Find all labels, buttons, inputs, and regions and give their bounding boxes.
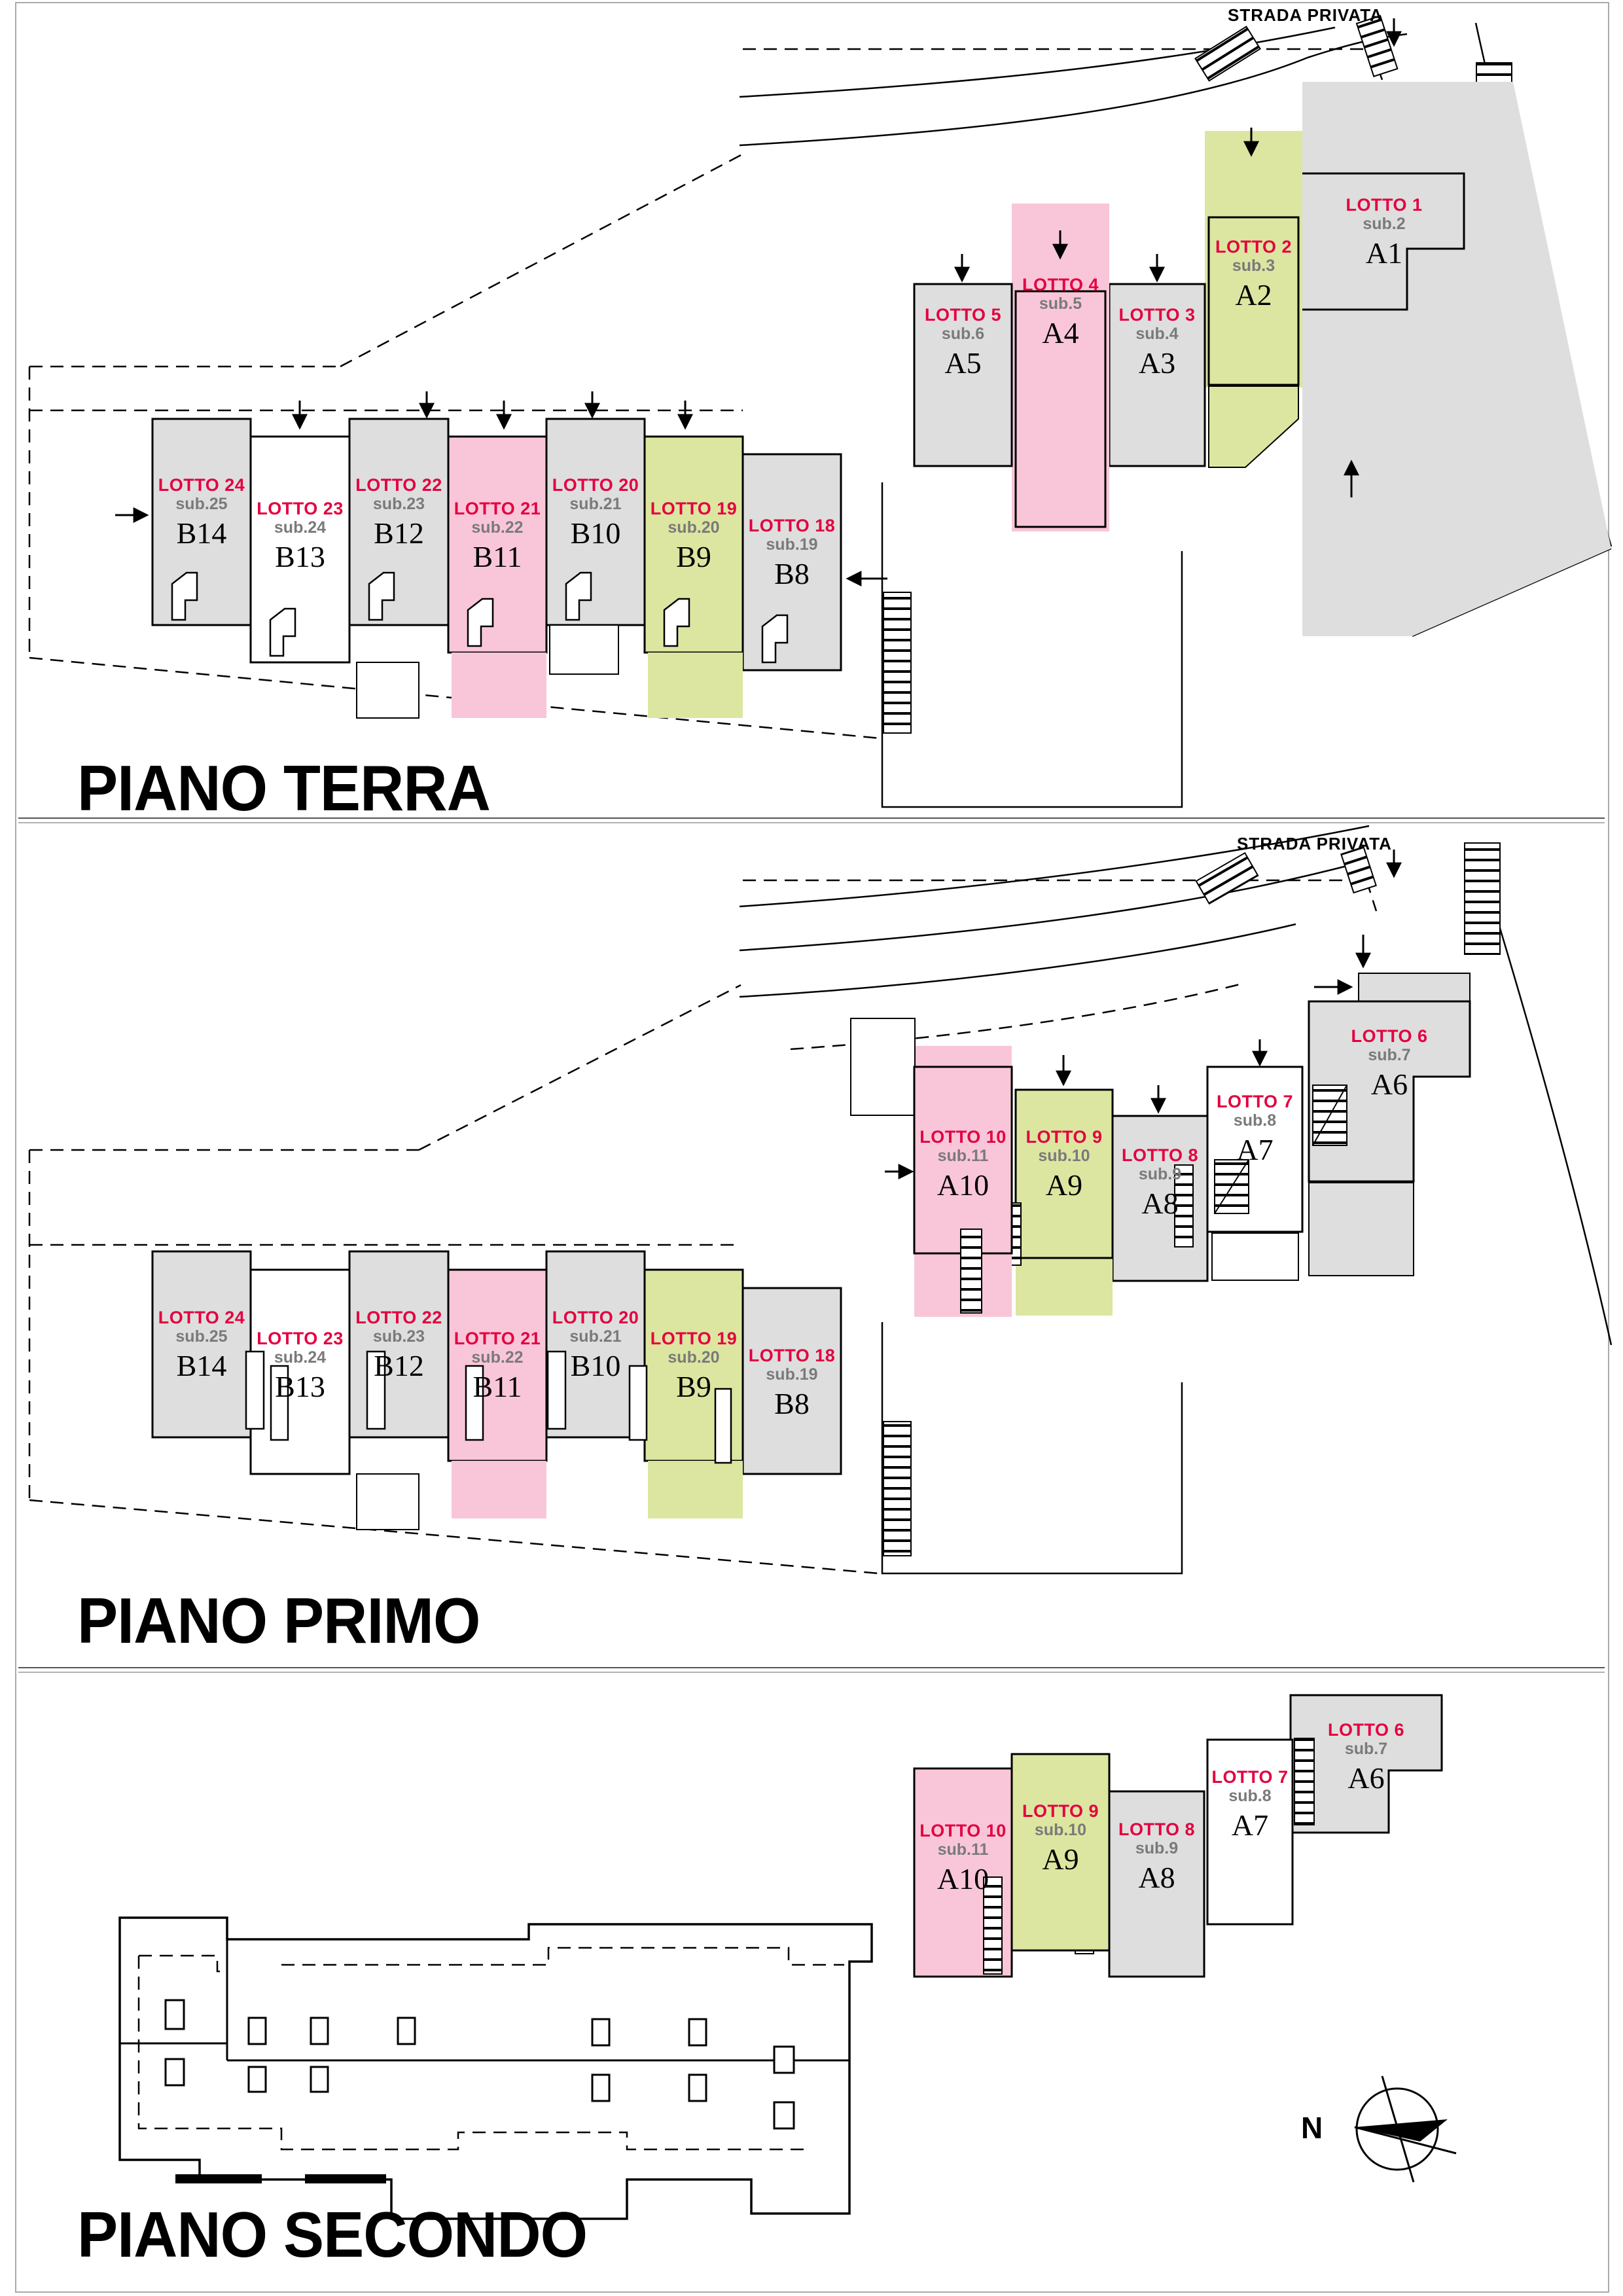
lot-21-piano-terra[interactable]: LOTTO 21 sub.22 B11 bbox=[448, 499, 546, 574]
lot-23-piano-primo[interactable]: LOTTO 23 sub.24 B13 bbox=[251, 1329, 349, 1404]
lotto-label: LOTTO 18 bbox=[743, 516, 841, 535]
unit-code: A8 bbox=[1109, 1861, 1204, 1895]
unit-code: A8 bbox=[1113, 1187, 1207, 1221]
lotto-label: LOTTO 6 bbox=[1309, 1026, 1470, 1046]
lotto-label: LOTTO 18 bbox=[743, 1346, 841, 1365]
lot-21-piano-primo[interactable]: LOTTO 21 sub.22 B11 bbox=[448, 1329, 546, 1404]
unit-code: B14 bbox=[152, 1349, 251, 1383]
sub-label: sub.11 bbox=[914, 1840, 1012, 1859]
unit-code: B13 bbox=[251, 540, 349, 574]
unit-code: B10 bbox=[546, 1349, 645, 1383]
unit-code: A10 bbox=[914, 1862, 1012, 1896]
unit-code: B9 bbox=[645, 540, 743, 574]
lot-22-piano-primo[interactable]: LOTTO 22 sub.23 B12 bbox=[349, 1308, 448, 1383]
unit-code: A3 bbox=[1109, 346, 1205, 380]
lotto-label: LOTTO 3 bbox=[1109, 305, 1205, 325]
sub-label: sub.25 bbox=[152, 495, 251, 513]
floor-title-piano-secondo: PIANO SECONDO bbox=[77, 2198, 587, 2272]
unit-code: A9 bbox=[1012, 1842, 1109, 1876]
unit-code: B11 bbox=[448, 1370, 546, 1404]
lot-10-piano-secondo[interactable]: LOTTO 10 sub.11 A10 bbox=[914, 1821, 1012, 1896]
lotto-label: LOTTO 6 bbox=[1291, 1720, 1442, 1740]
sub-label: sub.21 bbox=[546, 1327, 645, 1346]
unit-code: B14 bbox=[152, 516, 251, 550]
lot-2-piano-terra[interactable]: LOTTO 2 sub.3 A2 bbox=[1205, 237, 1302, 312]
unit-code: A7 bbox=[1207, 1133, 1302, 1167]
lot-19-piano-terra[interactable]: LOTTO 19 sub.20 B9 bbox=[645, 499, 743, 574]
lotto-label: LOTTO 24 bbox=[152, 475, 251, 495]
floor-title-piano-primo: PIANO PRIMO bbox=[77, 1584, 480, 1658]
sub-label: sub.7 bbox=[1291, 1740, 1442, 1758]
lot-5-piano-terra[interactable]: LOTTO 5 sub.6 A5 bbox=[914, 305, 1012, 380]
lot-9-piano-primo[interactable]: LOTTO 9 sub.10 A9 bbox=[1016, 1127, 1113, 1202]
lotto-label: LOTTO 10 bbox=[914, 1127, 1012, 1147]
site-plan-drawing: STRADA PRIVATA STRADA PRIVATA LOTTO 1 su… bbox=[0, 0, 1623, 2296]
lotto-label: LOTTO 1 bbox=[1306, 195, 1463, 215]
lotto-label: LOTTO 9 bbox=[1012, 1801, 1109, 1821]
compass-north-label: N bbox=[1301, 2110, 1323, 2145]
sub-label: sub.19 bbox=[743, 1365, 841, 1384]
sub-label: sub.20 bbox=[645, 518, 743, 537]
unit-code: B11 bbox=[448, 540, 546, 574]
lotto-label: LOTTO 5 bbox=[914, 305, 1012, 325]
unit-code: A9 bbox=[1016, 1168, 1113, 1202]
unit-code: A6 bbox=[1309, 1067, 1470, 1102]
lot-24-piano-terra[interactable]: LOTTO 24 sub.25 B14 bbox=[152, 475, 251, 550]
road-label-top: STRADA PRIVATA bbox=[1228, 5, 1383, 26]
lot-9-piano-secondo[interactable]: LOTTO 9 sub.10 A9 bbox=[1012, 1801, 1109, 1876]
plan-linework bbox=[0, 0, 1623, 2296]
lot-8-piano-secondo[interactable]: LOTTO 8 sub.9 A8 bbox=[1109, 1820, 1204, 1895]
lotto-label: LOTTO 23 bbox=[251, 499, 349, 518]
lot-20-piano-primo[interactable]: LOTTO 20 sub.21 B10 bbox=[546, 1308, 645, 1383]
sub-label: sub.22 bbox=[448, 518, 546, 537]
sub-label: sub.23 bbox=[349, 495, 448, 513]
sub-label: sub.24 bbox=[251, 518, 349, 537]
sub-label: sub.23 bbox=[349, 1327, 448, 1346]
lot-19-piano-primo[interactable]: LOTTO 19 sub.20 B9 bbox=[645, 1329, 743, 1404]
sub-label: sub.8 bbox=[1207, 1111, 1302, 1130]
lot-22-piano-terra[interactable]: LOTTO 22 sub.23 B12 bbox=[349, 475, 448, 550]
lot-23-piano-terra[interactable]: LOTTO 23 sub.24 B13 bbox=[251, 499, 349, 574]
unit-code: B12 bbox=[349, 1349, 448, 1383]
road-label-middle: STRADA PRIVATA bbox=[1237, 834, 1392, 854]
lot-20-piano-terra[interactable]: LOTTO 20 sub.21 B10 bbox=[546, 475, 645, 550]
sub-label: sub.7 bbox=[1309, 1046, 1470, 1064]
sub-label: sub.6 bbox=[914, 325, 1012, 343]
lot-24-piano-primo[interactable]: LOTTO 24 sub.25 B14 bbox=[152, 1308, 251, 1383]
sub-label: sub.2 bbox=[1306, 215, 1463, 233]
sub-label: sub.24 bbox=[251, 1348, 349, 1367]
sub-label: sub.8 bbox=[1207, 1787, 1293, 1805]
unit-code: B8 bbox=[743, 1387, 841, 1421]
unit-code: A10 bbox=[914, 1168, 1012, 1202]
lot-18-piano-primo[interactable]: LOTTO 18 sub.19 B8 bbox=[743, 1346, 841, 1421]
lot-4-piano-terra[interactable]: LOTTO 4 sub.5 A4 bbox=[1012, 275, 1109, 350]
sub-label: sub.22 bbox=[448, 1348, 546, 1367]
unit-code: A6 bbox=[1291, 1761, 1442, 1795]
lotto-label: LOTTO 24 bbox=[152, 1308, 251, 1327]
lot-6-piano-primo[interactable]: LOTTO 6 sub.7 A6 bbox=[1309, 1026, 1470, 1102]
lotto-label: LOTTO 19 bbox=[645, 1329, 743, 1348]
sub-label: sub.9 bbox=[1109, 1839, 1204, 1857]
lotto-label: LOTTO 8 bbox=[1109, 1820, 1204, 1839]
sub-label: sub.25 bbox=[152, 1327, 251, 1346]
sub-label: sub.9 bbox=[1113, 1165, 1207, 1183]
lot-3-piano-terra[interactable]: LOTTO 3 sub.4 A3 bbox=[1109, 305, 1205, 380]
lot-1-piano-terra[interactable]: LOTTO 1 sub.2 A1 bbox=[1306, 195, 1463, 270]
lotto-label: LOTTO 2 bbox=[1205, 237, 1302, 257]
unit-code: A2 bbox=[1205, 278, 1302, 312]
lotto-label: LOTTO 7 bbox=[1207, 1092, 1302, 1111]
unit-code: B13 bbox=[251, 1370, 349, 1404]
sub-label: sub.21 bbox=[546, 495, 645, 513]
sub-label: sub.10 bbox=[1012, 1821, 1109, 1839]
sub-label: sub.4 bbox=[1109, 325, 1205, 343]
lotto-label: LOTTO 23 bbox=[251, 1329, 349, 1348]
sub-label: sub.10 bbox=[1016, 1147, 1113, 1165]
compass-icon bbox=[1355, 2076, 1456, 2182]
lotto-label: LOTTO 20 bbox=[546, 475, 645, 495]
lotto-label: LOTTO 21 bbox=[448, 499, 546, 518]
unit-code: B9 bbox=[645, 1370, 743, 1404]
unit-code: B8 bbox=[743, 557, 841, 591]
lotto-label: LOTTO 19 bbox=[645, 499, 743, 518]
sub-label: sub.11 bbox=[914, 1147, 1012, 1165]
floor-title-piano-terra: PIANO TERRA bbox=[77, 751, 490, 825]
lotto-label: LOTTO 22 bbox=[349, 1308, 448, 1327]
lotto-label: LOTTO 21 bbox=[448, 1329, 546, 1348]
lot-10-piano-primo[interactable]: LOTTO 10 sub.11 A10 bbox=[914, 1127, 1012, 1202]
unit-code: B12 bbox=[349, 516, 448, 550]
sub-label: sub.3 bbox=[1205, 257, 1302, 275]
lotto-label: LOTTO 9 bbox=[1016, 1127, 1113, 1147]
unit-code: A5 bbox=[914, 346, 1012, 380]
sub-label: sub.5 bbox=[1012, 295, 1109, 313]
unit-code: A7 bbox=[1207, 1808, 1293, 1842]
sub-label: sub.20 bbox=[645, 1348, 743, 1367]
lot-8-piano-primo[interactable]: LOTTO 8 sub.9 A8 bbox=[1113, 1145, 1207, 1221]
lotto-label: LOTTO 22 bbox=[349, 475, 448, 495]
lot-6-piano-secondo[interactable]: LOTTO 6 sub.7 A6 bbox=[1291, 1720, 1442, 1795]
sub-label: sub.19 bbox=[743, 535, 841, 554]
lotto-label: LOTTO 4 bbox=[1012, 275, 1109, 295]
unit-code: A4 bbox=[1012, 316, 1109, 350]
unit-code: A1 bbox=[1306, 236, 1463, 270]
lot-7-piano-secondo[interactable]: LOTTO 7 sub.8 A7 bbox=[1207, 1767, 1293, 1842]
lotto-label: LOTTO 10 bbox=[914, 1821, 1012, 1840]
lot-7-piano-primo[interactable]: LOTTO 7 sub.8 A7 bbox=[1207, 1092, 1302, 1167]
lotto-label: LOTTO 7 bbox=[1207, 1767, 1293, 1787]
lotto-label: LOTTO 8 bbox=[1113, 1145, 1207, 1165]
unit-code: B10 bbox=[546, 516, 645, 550]
lotto-label: LOTTO 20 bbox=[546, 1308, 645, 1327]
lot-18-piano-terra[interactable]: LOTTO 18 sub.19 B8 bbox=[743, 516, 841, 591]
